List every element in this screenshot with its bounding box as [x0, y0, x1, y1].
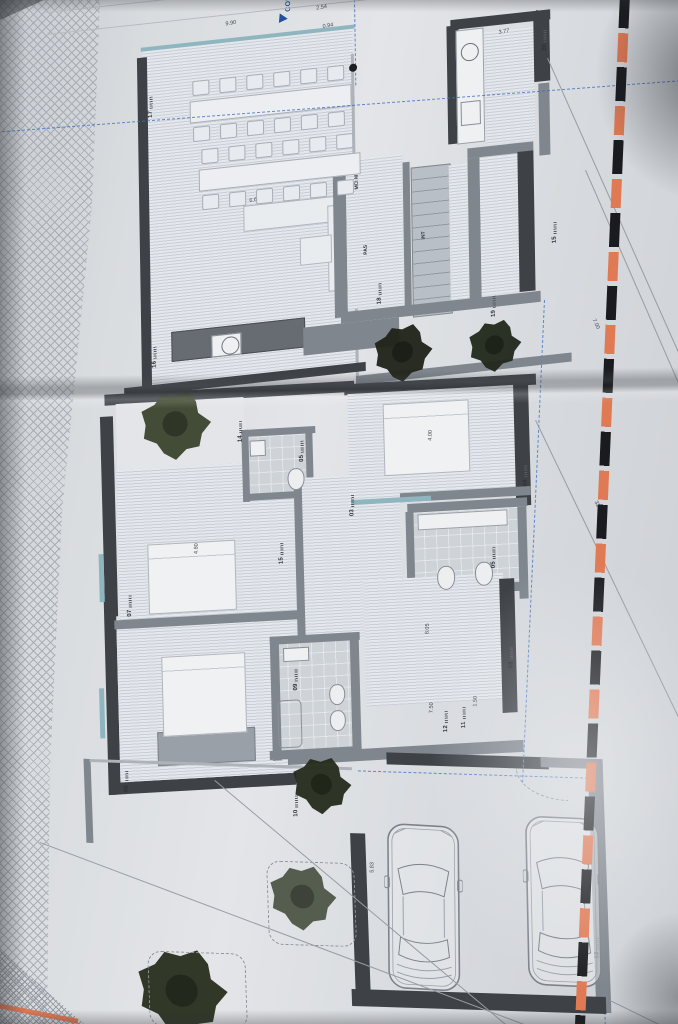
dimension-label: 7.00	[591, 318, 601, 330]
photo-shadow-left	[0, 0, 26, 1024]
photo-shadow-bottom	[0, 1010, 678, 1024]
photo-shadow-top	[0, 0, 678, 12]
floor-plan-photo: CORTE D 171620151819MCI MINPASINT9.902.5…	[0, 0, 678, 1024]
